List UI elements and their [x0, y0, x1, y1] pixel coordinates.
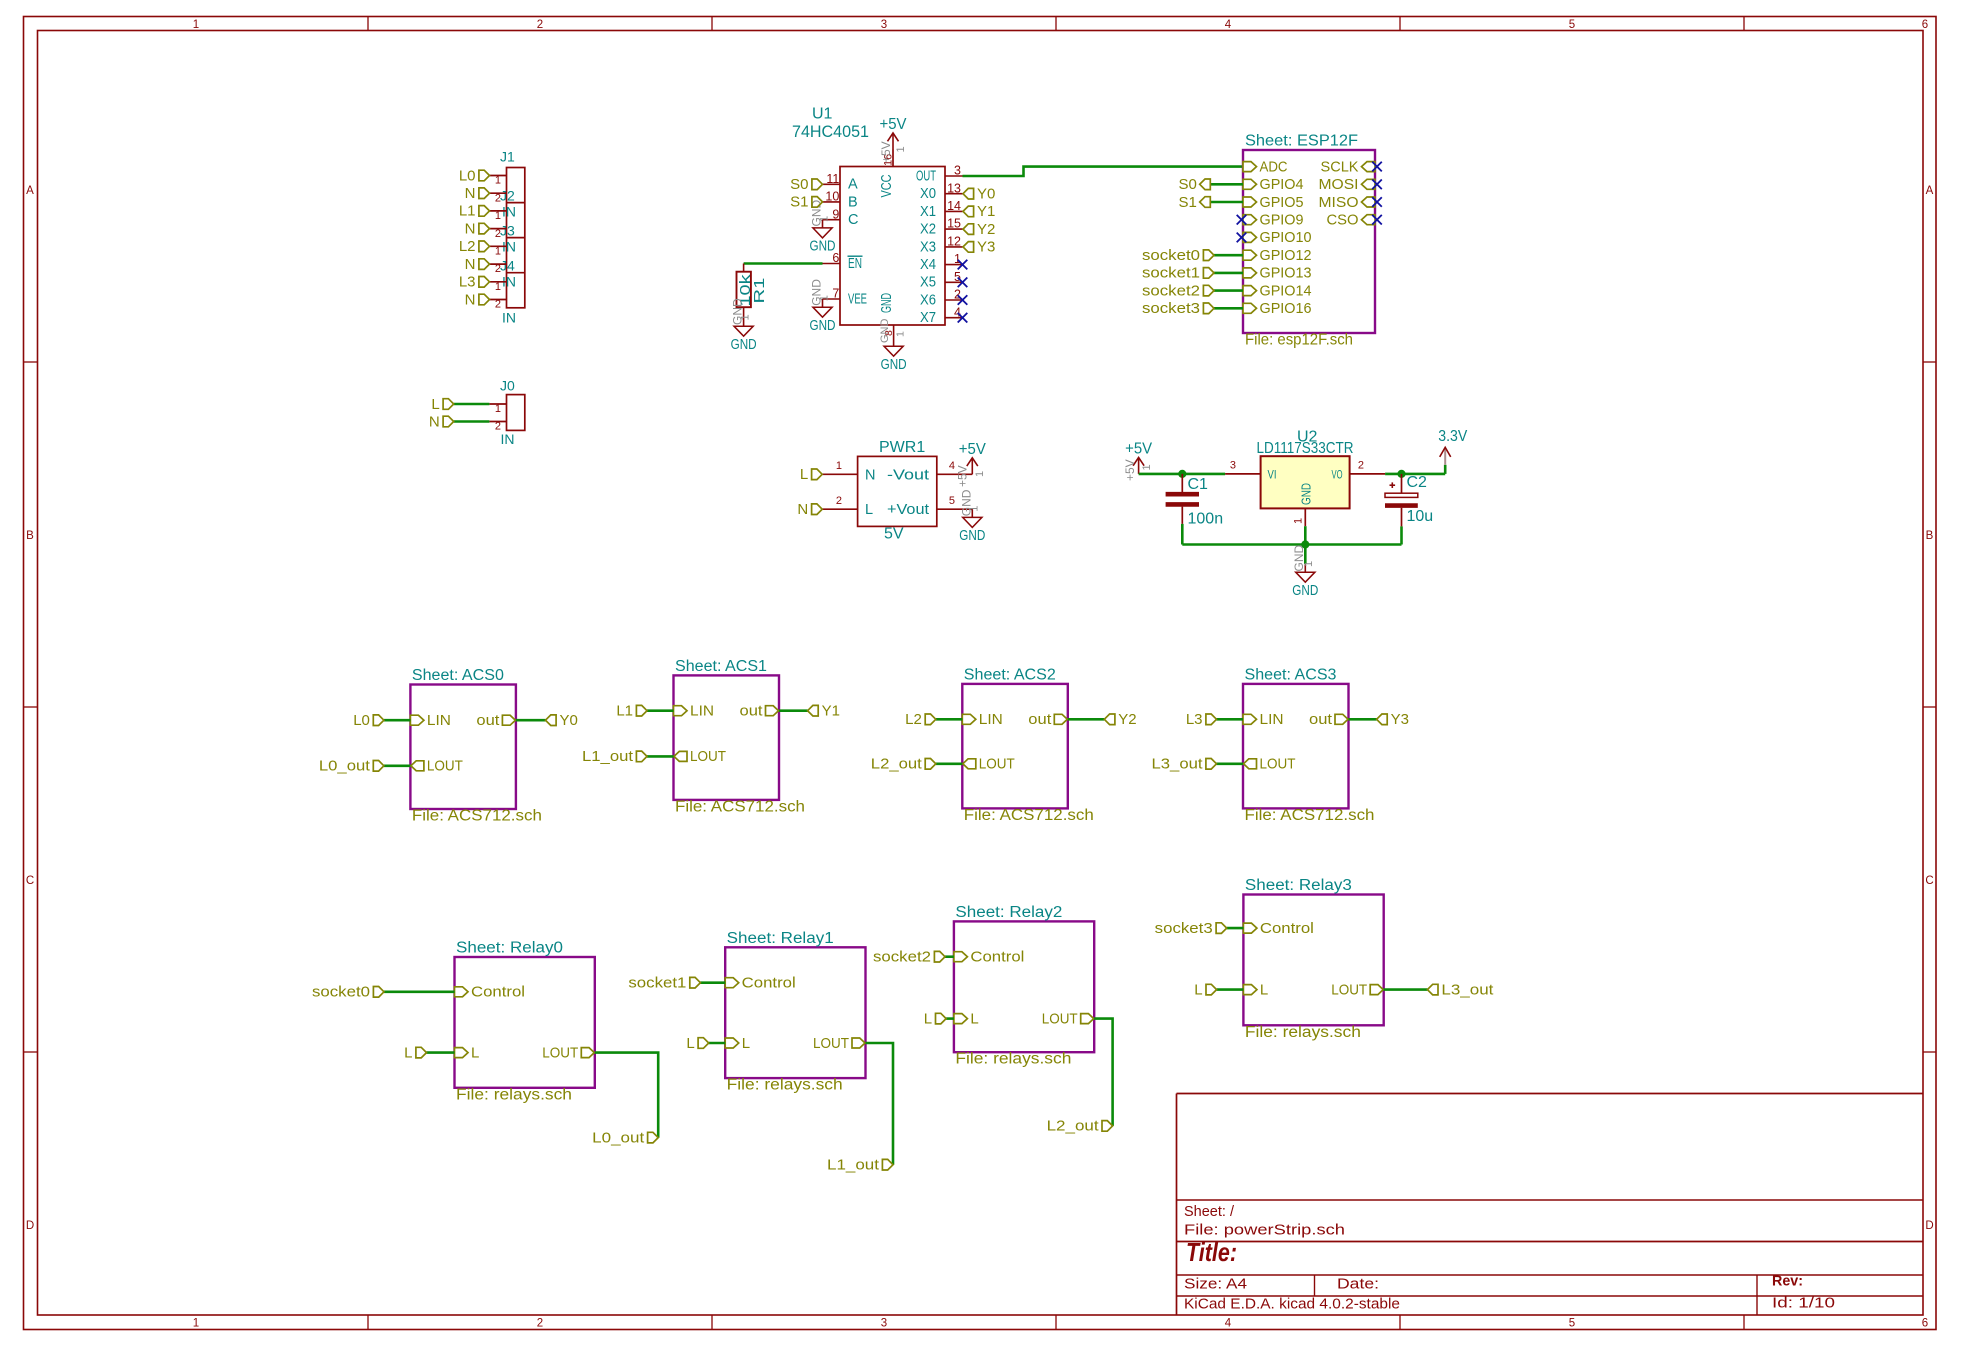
svg-text:5: 5 — [954, 270, 961, 284]
svg-text:4: 4 — [949, 460, 955, 472]
svg-text:5V: 5V — [884, 526, 904, 543]
svg-text:EN: EN — [848, 256, 862, 272]
svg-text:CSO: CSO — [1327, 212, 1359, 229]
svg-text:S0: S0 — [1178, 176, 1196, 193]
svg-text:1: 1 — [819, 295, 831, 301]
svg-text:GND: GND — [959, 527, 985, 544]
svg-text:1: 1 — [495, 175, 501, 187]
svg-text:VEE: VEE — [848, 291, 867, 307]
svg-text:GND: GND — [810, 317, 836, 334]
svg-text:socket1: socket1 — [1142, 265, 1200, 282]
svg-text:L: L — [1260, 981, 1268, 998]
svg-text:LOUT: LOUT — [1042, 1010, 1078, 1027]
svg-text:A: A — [1926, 185, 1934, 197]
svg-text:GND: GND — [810, 238, 836, 255]
svg-text:ADC: ADC — [1260, 158, 1288, 175]
svg-text:L3_out: L3_out — [1441, 981, 1494, 998]
svg-text:Y2: Y2 — [977, 221, 995, 238]
svg-text:10: 10 — [825, 190, 839, 204]
svg-text:LIN: LIN — [427, 712, 451, 729]
svg-text:B: B — [848, 194, 858, 210]
svg-text:L3: L3 — [459, 274, 476, 291]
svg-text:VI: VI — [1268, 470, 1277, 482]
svg-text:X6: X6 — [920, 292, 936, 308]
svg-text:L: L — [431, 396, 439, 413]
svg-text:Title:: Title: — [1186, 1237, 1237, 1267]
svg-text:Date:: Date: — [1337, 1277, 1379, 1293]
svg-text:N: N — [465, 291, 476, 308]
svg-text:+5V: +5V — [959, 441, 987, 458]
svg-text:out: out — [740, 703, 764, 720]
svg-text:L: L — [800, 466, 808, 483]
svg-text:GPIO4: GPIO4 — [1260, 176, 1304, 193]
svg-text:KiCad E.D.A. kicad 4.0.2-stab: KiCad E.D.A. kicad 4.0.2-stable — [1184, 1297, 1400, 1313]
svg-text:L: L — [742, 1035, 750, 1052]
svg-text:File: ACS712.sch: File: ACS712.sch — [1245, 807, 1375, 824]
svg-text:2: 2 — [495, 299, 501, 311]
svg-text:N: N — [797, 501, 808, 518]
svg-text:2: 2 — [1358, 460, 1364, 472]
svg-text:+5V: +5V — [1123, 459, 1137, 481]
svg-text:VCC: VCC — [879, 175, 895, 198]
svg-text:Y0: Y0 — [977, 186, 995, 203]
svg-text:GND: GND — [879, 293, 895, 313]
svg-text:L1_out: L1_out — [827, 1157, 880, 1174]
svg-text:14: 14 — [947, 199, 961, 213]
svg-text:GPIO10: GPIO10 — [1260, 229, 1312, 246]
svg-text:File: ACS712.sch: File: ACS712.sch — [964, 807, 1094, 824]
svg-text:GPIO12: GPIO12 — [1260, 247, 1312, 264]
svg-text:Sheet: ACS3: Sheet: ACS3 — [1245, 667, 1337, 684]
svg-text:GND: GND — [1299, 483, 1314, 505]
svg-text:1: 1 — [495, 210, 501, 222]
svg-text:L3_out: L3_out — [1152, 756, 1204, 773]
svg-text:L2_out: L2_out — [871, 756, 923, 773]
svg-text:R1: R1 — [751, 278, 768, 304]
svg-text:7: 7 — [832, 287, 839, 301]
svg-text:C: C — [848, 212, 858, 228]
svg-text:D: D — [1925, 1220, 1933, 1232]
svg-text:+5V: +5V — [880, 116, 908, 133]
svg-text:B: B — [26, 530, 34, 542]
svg-text:1: 1 — [495, 246, 501, 258]
svg-text:N: N — [465, 185, 476, 202]
svg-text:IN: IN — [501, 431, 515, 447]
svg-text:5: 5 — [1569, 1318, 1575, 1330]
svg-text:1: 1 — [819, 216, 831, 222]
svg-text:PWR1: PWR1 — [879, 439, 925, 456]
svg-text:Y2: Y2 — [1118, 711, 1136, 728]
svg-text:LIN: LIN — [979, 711, 1003, 728]
svg-text:GND: GND — [1292, 582, 1318, 599]
svg-text:L: L — [404, 1044, 412, 1061]
svg-text:L: L — [686, 1035, 694, 1052]
svg-text:N: N — [429, 413, 440, 430]
svg-text:15: 15 — [947, 217, 961, 231]
svg-text:socket3: socket3 — [1142, 300, 1200, 317]
svg-text:GPIO14: GPIO14 — [1260, 282, 1312, 299]
svg-text:File: esp12F.sch: File: esp12F.sch — [1245, 332, 1353, 349]
svg-text:10u: 10u — [1407, 508, 1434, 525]
svg-text:J2: J2 — [500, 188, 515, 204]
svg-text:Sheet: Relay0: Sheet: Relay0 — [456, 940, 563, 957]
svg-text:File: relays.sch: File: relays.sch — [955, 1051, 1071, 1068]
svg-text:GND: GND — [731, 336, 757, 353]
svg-text:N: N — [865, 467, 875, 483]
svg-text:3: 3 — [881, 19, 887, 31]
svg-text:Sheet: Relay2: Sheet: Relay2 — [955, 904, 1062, 921]
svg-text:S0: S0 — [790, 176, 808, 193]
svg-text:LOUT: LOUT — [427, 758, 463, 775]
svg-text:Id: 1/10: Id: 1/10 — [1772, 1296, 1835, 1312]
svg-text:X1: X1 — [920, 204, 936, 220]
svg-text:Size: A4: Size: A4 — [1184, 1277, 1247, 1293]
svg-text:-Vout: -Vout — [887, 467, 929, 483]
svg-text:Sheet: ACS1: Sheet: ACS1 — [675, 658, 767, 675]
svg-text:LOUT: LOUT — [813, 1035, 849, 1052]
svg-text:2: 2 — [537, 1318, 543, 1330]
svg-text:12: 12 — [947, 235, 961, 249]
svg-text:6: 6 — [1922, 19, 1928, 31]
svg-text:out: out — [476, 712, 500, 729]
svg-text:1: 1 — [193, 1318, 199, 1330]
svg-text:S1: S1 — [1178, 194, 1196, 211]
svg-text:Y3: Y3 — [977, 239, 995, 256]
svg-text:L2: L2 — [459, 238, 476, 255]
svg-text:A: A — [26, 185, 34, 197]
svg-text:GND: GND — [879, 319, 891, 344]
svg-text:9: 9 — [832, 207, 839, 221]
svg-text:4: 4 — [1225, 19, 1232, 31]
svg-text:6: 6 — [1922, 1318, 1928, 1330]
svg-text:X4: X4 — [920, 257, 936, 273]
svg-text:L: L — [924, 1010, 932, 1027]
svg-text:U1: U1 — [812, 106, 833, 123]
svg-text:N: N — [465, 220, 476, 237]
svg-text:2: 2 — [836, 495, 842, 507]
svg-text:Control: Control — [1260, 920, 1314, 937]
svg-text:1: 1 — [974, 471, 986, 477]
svg-text:C: C — [1925, 875, 1933, 887]
svg-text:Sheet: Relay1: Sheet: Relay1 — [727, 930, 834, 947]
svg-text:74HC4051: 74HC4051 — [792, 122, 869, 141]
svg-text:C1: C1 — [1188, 476, 1209, 493]
svg-text:X5: X5 — [920, 275, 936, 291]
svg-text:Y0: Y0 — [560, 712, 578, 729]
svg-text:+Vout: +Vout — [887, 502, 929, 518]
svg-text:4: 4 — [954, 305, 961, 319]
svg-text:100n: 100n — [1188, 511, 1224, 528]
svg-text:Rev:: Rev: — [1772, 1274, 1803, 1290]
svg-text:Sheet: ACS2: Sheet: ACS2 — [964, 667, 1056, 684]
svg-text:socket2: socket2 — [1142, 282, 1200, 299]
svg-text:GND: GND — [881, 356, 907, 373]
svg-text:GPIO5: GPIO5 — [1260, 194, 1304, 211]
svg-text:2: 2 — [495, 192, 501, 204]
svg-text:L0: L0 — [459, 167, 476, 184]
svg-text:+5V: +5V — [1125, 440, 1153, 457]
svg-text:1: 1 — [954, 252, 961, 266]
svg-text:socket0: socket0 — [312, 984, 370, 1001]
svg-text:L1_out: L1_out — [582, 748, 634, 765]
svg-text:socket0: socket0 — [1142, 247, 1200, 264]
svg-text:Control: Control — [471, 984, 525, 1001]
svg-text:J1: J1 — [500, 149, 515, 165]
svg-text:2: 2 — [954, 288, 961, 302]
svg-text:1: 1 — [193, 19, 199, 31]
svg-text:Sheet: ACS0: Sheet: ACS0 — [412, 667, 504, 684]
svg-text:3.3V: 3.3V — [1438, 428, 1467, 445]
svg-text:LD1117S33CTR: LD1117S33CTR — [1257, 440, 1354, 457]
svg-text:+5V: +5V — [879, 141, 893, 163]
svg-text:D: D — [26, 1220, 34, 1232]
svg-text:Y1: Y1 — [977, 203, 995, 220]
svg-text:VO: VO — [1332, 470, 1343, 482]
svg-text:C: C — [26, 875, 34, 887]
svg-text:File: relays.sch: File: relays.sch — [727, 1077, 843, 1094]
svg-text:LOUT: LOUT — [979, 756, 1015, 773]
svg-text:11: 11 — [826, 172, 839, 186]
svg-text:LIN: LIN — [690, 703, 714, 720]
svg-text:GPIO13: GPIO13 — [1260, 265, 1312, 282]
svg-text:Sheet: ESP12F: Sheet: ESP12F — [1245, 133, 1358, 150]
svg-text:L0: L0 — [353, 712, 370, 729]
svg-text:socket1: socket1 — [628, 975, 686, 992]
svg-text:GPIO9: GPIO9 — [1260, 212, 1304, 229]
svg-text:L2: L2 — [905, 711, 922, 728]
svg-text:3: 3 — [1230, 460, 1236, 472]
svg-text:OUT: OUT — [916, 168, 936, 184]
svg-text:1: 1 — [1293, 518, 1305, 524]
svg-text:B: B — [1926, 530, 1934, 542]
svg-text:1: 1 — [495, 403, 501, 415]
svg-text:C2: C2 — [1407, 474, 1428, 491]
svg-text:L2_out: L2_out — [1047, 1118, 1100, 1135]
svg-text:L3: L3 — [1186, 711, 1203, 728]
svg-text:1: 1 — [1303, 561, 1315, 567]
svg-text:L: L — [970, 1010, 978, 1027]
svg-text:L1: L1 — [616, 703, 633, 720]
svg-text:1: 1 — [836, 460, 842, 472]
svg-text:1: 1 — [1141, 464, 1153, 470]
svg-text:J0: J0 — [500, 378, 515, 394]
svg-text:socket2: socket2 — [873, 949, 931, 966]
svg-text:4: 4 — [1225, 1318, 1232, 1330]
svg-text:X0: X0 — [920, 186, 936, 202]
svg-text:1: 1 — [895, 146, 907, 152]
svg-text:L1: L1 — [459, 203, 476, 220]
svg-text:LOUT: LOUT — [690, 748, 726, 765]
svg-text:MISO: MISO — [1319, 194, 1359, 211]
svg-text:L0_out: L0_out — [592, 1129, 645, 1146]
svg-text:3: 3 — [881, 1318, 887, 1330]
svg-text:out: out — [1028, 711, 1052, 728]
svg-text:J3: J3 — [500, 223, 515, 239]
svg-text:1: 1 — [740, 314, 752, 320]
svg-text:LOUT: LOUT — [542, 1044, 578, 1061]
svg-text:SCLK: SCLK — [1321, 158, 1359, 175]
svg-text:File: ACS712.sch: File: ACS712.sch — [675, 798, 805, 815]
svg-text:X3: X3 — [920, 239, 936, 255]
svg-text:13: 13 — [947, 181, 961, 195]
svg-text:LOUT: LOUT — [1331, 981, 1367, 998]
svg-text:2: 2 — [495, 228, 501, 240]
svg-text:J4: J4 — [500, 258, 515, 274]
svg-text:N: N — [465, 256, 476, 273]
svg-text:5: 5 — [949, 495, 955, 507]
svg-text:Control: Control — [970, 949, 1024, 966]
svg-text:1: 1 — [495, 281, 501, 293]
svg-text:3: 3 — [954, 164, 961, 178]
svg-text:Y3: Y3 — [1391, 711, 1409, 728]
svg-text:S1: S1 — [790, 194, 808, 211]
svg-text:Sheet: Relay3: Sheet: Relay3 — [1245, 877, 1352, 894]
svg-text:5: 5 — [1569, 19, 1575, 31]
svg-text:X7: X7 — [920, 310, 936, 326]
svg-text:X2: X2 — [920, 222, 936, 238]
svg-text:Control: Control — [742, 975, 796, 992]
svg-text:2: 2 — [495, 421, 501, 433]
svg-text:socket3: socket3 — [1155, 920, 1213, 937]
svg-text:L0_out: L0_out — [319, 758, 371, 775]
svg-text:LIN: LIN — [1260, 711, 1284, 728]
svg-text:+5V: +5V — [956, 465, 970, 487]
svg-text:out: out — [1309, 711, 1333, 728]
svg-text:L: L — [471, 1044, 479, 1061]
svg-text:GPIO16: GPIO16 — [1260, 300, 1312, 317]
svg-text:File: ACS712.sch: File: ACS712.sch — [412, 808, 542, 825]
svg-text:IN: IN — [502, 310, 516, 326]
svg-text:Sheet: /: Sheet: / — [1184, 1204, 1235, 1220]
svg-text:2: 2 — [537, 19, 543, 31]
svg-text:Y1: Y1 — [822, 703, 840, 720]
svg-text:MOSI: MOSI — [1319, 176, 1359, 193]
svg-text:LOUT: LOUT — [1260, 756, 1296, 773]
svg-text:L: L — [865, 502, 873, 518]
svg-text:1: 1 — [968, 506, 980, 512]
svg-text:File: relays.sch: File: relays.sch — [456, 1086, 572, 1103]
svg-text:L: L — [1194, 981, 1202, 998]
svg-text:1: 1 — [895, 331, 907, 337]
svg-text:A: A — [848, 177, 858, 193]
svg-text:2: 2 — [495, 263, 501, 275]
svg-text:File: relays.sch: File: relays.sch — [1245, 1024, 1361, 1041]
